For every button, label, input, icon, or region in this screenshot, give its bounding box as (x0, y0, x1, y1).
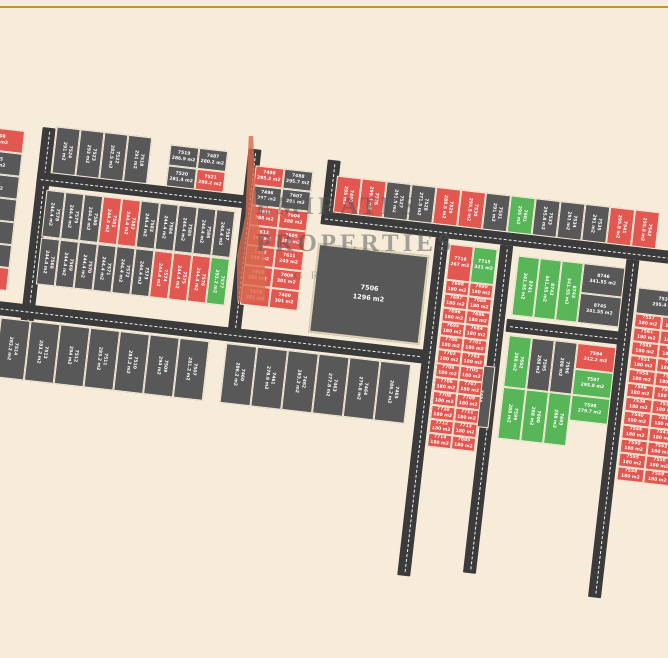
plot-label: 7596288 m2 (557, 357, 570, 377)
plot-label: 7695180 m2 (442, 323, 462, 336)
plot-label: 7578244.4 m2 (46, 202, 60, 227)
plot-label: 7557180 m2 (638, 315, 658, 328)
plot-label: 7558180 m2 (621, 468, 641, 481)
plot-label: 7463277.8 m2 (324, 373, 338, 398)
plot-label: 7533295.8 m2 (539, 206, 553, 231)
plot-label: 7583244.4 m2 (141, 213, 155, 238)
plot-label: 7498295.2 m2 (257, 170, 282, 184)
plot-label: 7568244.4 m2 (41, 250, 55, 275)
plot-label: 7507281.2 m2 (184, 357, 198, 382)
plot-label: 7450295 m2 (341, 185, 354, 205)
plot-label: 7544180 m2 (625, 426, 645, 439)
plot-label: 7511283.2 m2 (95, 347, 109, 372)
plot-label: 7513283.2 m2 (35, 340, 49, 365)
plot-label: 7698180 m2 (447, 281, 467, 294)
plot-label: 7607295 m2 (286, 193, 306, 206)
plot-7507[interactable]: 7507281.2 m2 (173, 338, 210, 401)
screenshot-body: { "page": {"background": "#f6ecd9", "top… (0, 0, 668, 452)
plot-label: 7605288 m2 (281, 233, 301, 246)
plot-label: 7601295 m2 (515, 205, 528, 225)
plot-label: 7715321 m2 (474, 259, 494, 272)
plot-label: 7604288 m2 (283, 213, 303, 226)
plot-label: 7716267 m2 (450, 256, 470, 269)
plot-label: 7549180 m2 (635, 343, 655, 356)
plot-label: 7707180 m2 (460, 381, 480, 394)
plot-label: 7505260 m2 (0, 156, 6, 169)
plot-label: 7526299.5 m2 (365, 186, 379, 211)
plot-label: 7598279.7 m2 (577, 403, 602, 417)
plot-label: 7461278.9 m2 (262, 366, 276, 391)
plot-label: 7709180 m2 (458, 395, 478, 408)
plot-label: 8742341.55 m2 (540, 275, 554, 303)
plot-7508[interactable]: 7508260 m2 (0, 125, 25, 154)
plot-7558[interactable]: 7558180 m2 (616, 466, 644, 483)
plot-7465[interactable]: 7465286.2 m2 (374, 361, 412, 424)
plot-label: 8745341.55 m2 (586, 303, 614, 317)
plot-7598[interactable]: 7598279.7 m2 (569, 395, 611, 425)
plot-label: 7534291 m2 (564, 211, 577, 231)
plot-7479[interactable]: 7479301 m2 (240, 285, 271, 308)
plot-label: 7610301 m2 (248, 270, 268, 283)
plot-label: 7597295.8 m2 (580, 377, 605, 391)
plot-label: 7514283.2 m2 (5, 337, 19, 362)
plot-label: 7531291 m2 (490, 202, 503, 222)
plot-label: 7611249 m2 (279, 253, 299, 266)
plot-label: 7504260 m2 (0, 179, 4, 192)
plot-label: 7594312.2 m2 (583, 351, 608, 365)
plot-label: 7570244.4 m2 (79, 254, 93, 279)
plot-label: 7462283.2 m2 (293, 369, 307, 394)
plot-label: 7573244.4 m2 (135, 260, 149, 285)
plot-label: 7509294 m2 (155, 356, 168, 376)
plot-label: 7546180 m2 (630, 385, 650, 398)
plot-label: 7545180 m2 (659, 374, 668, 387)
plot-label: 7479301 m2 (245, 289, 265, 302)
plot-label: 7572244.4 m2 (117, 258, 131, 283)
plot-label: 7551180 m2 (633, 357, 653, 370)
plot-label: 7508260 m2 (0, 133, 9, 146)
plot-label: 7510283.2 m2 (125, 350, 139, 375)
plot-label: 7587244.4 m2 (216, 221, 230, 246)
plot-label: 7464279.8 m2 (355, 376, 369, 401)
plot-label: 7713180 m2 (455, 423, 475, 436)
plot-label: 7488295.7 m2 (285, 173, 310, 187)
plot-label: 7496297 m2 (257, 190, 277, 203)
plot-label: 7584244.4 m2 (160, 215, 174, 240)
plot-label: 7528271.5 m2 (415, 192, 429, 217)
plot-label: 7543180 m2 (654, 416, 668, 429)
plot-label: 7612249 m2 (250, 250, 270, 263)
plot-label: 7686180 m2 (468, 312, 488, 325)
plot-label: 7580244.4 m2 (84, 206, 98, 231)
plot-label: 7599288 m2 (505, 404, 518, 424)
plot-label: 7522282.5 m2 (107, 144, 121, 169)
plot-label: 7575244.4 m2 (173, 265, 187, 290)
plot-label: 7527291.5 m2 (390, 189, 404, 214)
plot-label: 7569244.4 m2 (60, 252, 74, 277)
plot-label: 7559180 m2 (647, 471, 667, 484)
plot-label: 7705180 m2 (461, 367, 481, 380)
plot-label: 7603288 m2 (551, 409, 564, 429)
plot-label: 7701180 m2 (465, 340, 485, 353)
plot-label: 7535291 m2 (589, 214, 602, 234)
plot-label: 7700180 m2 (441, 337, 461, 350)
plot-label: 7518291 m2 (131, 149, 144, 169)
plot-7587[interactable]: 7587244.4 m2 (211, 209, 235, 258)
plot-map-canvas: 7508260 m27505260 m27504260 m27491269 m2… (0, 104, 668, 658)
plot-label: 8746341.55 m2 (589, 273, 617, 287)
plot-label: 7609301 m2 (277, 273, 297, 286)
plot-label: 7579244.4 m2 (65, 204, 79, 229)
plot-label: 7696180 m2 (444, 309, 464, 322)
plot-label: 7702180 m2 (439, 351, 459, 364)
plot-label: 7685180 m2 (454, 437, 474, 450)
plot-label: 7708180 m2 (434, 393, 454, 406)
plot-7506[interactable]: 75061296 m2 (308, 243, 429, 345)
plot-label: 7542295.8 m2 (639, 217, 653, 242)
plot-label: 7536295.4 m2 (652, 297, 668, 311)
plot-label: 7688180 m2 (469, 298, 489, 311)
plot-label: 7684180 m2 (466, 326, 486, 339)
plot-label: 7586244.4 m2 (197, 219, 211, 244)
plot-8745[interactable]: 8745341.55 m2 (577, 293, 622, 328)
plot-label: 7487280.2 m2 (200, 153, 225, 167)
plot-label: 7537180 m2 (657, 388, 668, 401)
plot-label: 7523293 m2 (83, 144, 96, 164)
plot-label: 7554180 m2 (632, 371, 652, 384)
plot-label: 7602288 m2 (511, 352, 524, 372)
plot-label: 7581244.4 m2 (103, 208, 117, 233)
plot-label: 7519286.9 m2 (171, 150, 196, 164)
plot-label: 7529288.5 m2 (440, 194, 454, 219)
plot-label: 7571244.4 m2 (98, 256, 112, 281)
plot-7577[interactable]: 7577293.2 m2 (206, 257, 230, 306)
plot-label: 7465286.2 m2 (385, 380, 399, 405)
plot-label: 7576244.4 m2 (192, 267, 206, 292)
plot-label: 7711180 m2 (457, 409, 477, 422)
plot-label: 7548180 m2 (663, 332, 668, 345)
plot-label: 7552180 m2 (660, 360, 668, 373)
plot-label: 7697180 m2 (446, 295, 466, 308)
plot-7714[interactable]: 7714180 m2 (427, 433, 452, 450)
plot-label: 7556180 m2 (649, 457, 668, 470)
plot-label: 8741341.55 m2 (519, 273, 533, 301)
plot-label: 7520281.4 m2 (169, 171, 194, 185)
plot-label: 7710180 m2 (433, 406, 453, 419)
plot-label: 7613293 m2 (252, 230, 272, 243)
plot-label: 7553180 m2 (651, 443, 668, 456)
plot-label: 7547180 m2 (652, 429, 668, 442)
plot-label: 8743341.55 m2 (562, 278, 576, 306)
plot-label: 7540180 m2 (627, 412, 647, 425)
plot-label: 7714180 m2 (430, 434, 450, 447)
plot-7603[interactable]: 7603288 m2 (543, 392, 572, 446)
plot-7559[interactable]: 7559180 m2 (643, 469, 668, 486)
plot-label: 75061296 m2 (352, 282, 386, 305)
plot-label: 7539180 m2 (655, 402, 668, 415)
plot-label: 7703180 m2 (463, 354, 483, 367)
plot-label: 7541295.8 m2 (614, 214, 628, 239)
plot-label: 7561180 m2 (636, 329, 656, 342)
plot-label: 7690180 m2 (471, 284, 491, 297)
plot-7520[interactable]: 7520281.4 m2 (166, 165, 197, 189)
plot-label: 7560180 m2 (662, 346, 668, 359)
plot-label: 7491269 m2 (0, 202, 1, 215)
plot-label: 7530295.5 m2 (465, 197, 479, 222)
plot-label: 7521280.2 m2 (198, 174, 223, 188)
plot-label: 7460286.2 m2 (231, 362, 245, 387)
plot-label: 7582244.4 m2 (122, 210, 136, 235)
plot-label: 7574244.4 m2 (154, 262, 168, 287)
plot-7715[interactable]: 7715321 m2 (470, 247, 498, 285)
plot-label: 7577293.2 m2 (211, 269, 225, 294)
plot-7685[interactable]: 7685180 m2 (451, 435, 476, 452)
plot-label: 7512294 m2 (65, 346, 78, 366)
plot-label: 7595288 m2 (534, 355, 547, 375)
plot-label: 7704180 m2 (438, 365, 458, 378)
plot-label: 7555180 m2 (622, 454, 642, 467)
plot-label: 7712180 m2 (431, 420, 451, 433)
plot-label: 7524291 m2 (59, 141, 72, 161)
plot-label: 7706180 m2 (436, 379, 456, 392)
plot-7518[interactable]: 7518291 m2 (123, 135, 152, 184)
plot-8746[interactable]: 8746341.55 m2 (580, 263, 625, 298)
plot-label: 7600288 m2 (528, 407, 541, 427)
plot-label: 7615288 m2 (254, 210, 274, 223)
plot-label: 7538180 m2 (629, 399, 649, 412)
plot-label: 7585244.4 m2 (179, 217, 193, 242)
plot-7542[interactable]: 7542295.8 m2 (631, 210, 660, 250)
plot-7480[interactable]: 7480301 m2 (269, 288, 300, 311)
plot-label: 7480301 m2 (274, 293, 294, 306)
top-border-line (0, 6, 668, 8)
plot-7521[interactable]: 7521280.2 m2 (195, 169, 226, 193)
